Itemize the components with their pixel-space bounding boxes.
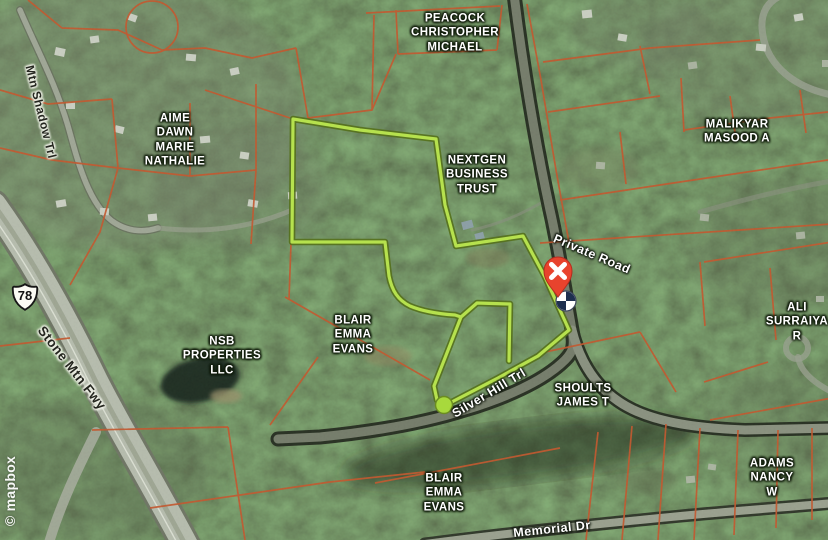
mapbox-attribution[interactable]: © mapbox	[2, 449, 18, 533]
us-78-highway-shield: 78	[11, 283, 39, 311]
satellite-map[interactable]: PEACOCK CHRISTOPHER MICHAEL AIME DAWN MA…	[0, 0, 828, 540]
satellite-basemap	[0, 0, 828, 540]
destination-marker[interactable]	[539, 253, 577, 299]
highway-shield-number: 78	[11, 288, 39, 303]
route-start-marker[interactable]	[428, 389, 460, 421]
